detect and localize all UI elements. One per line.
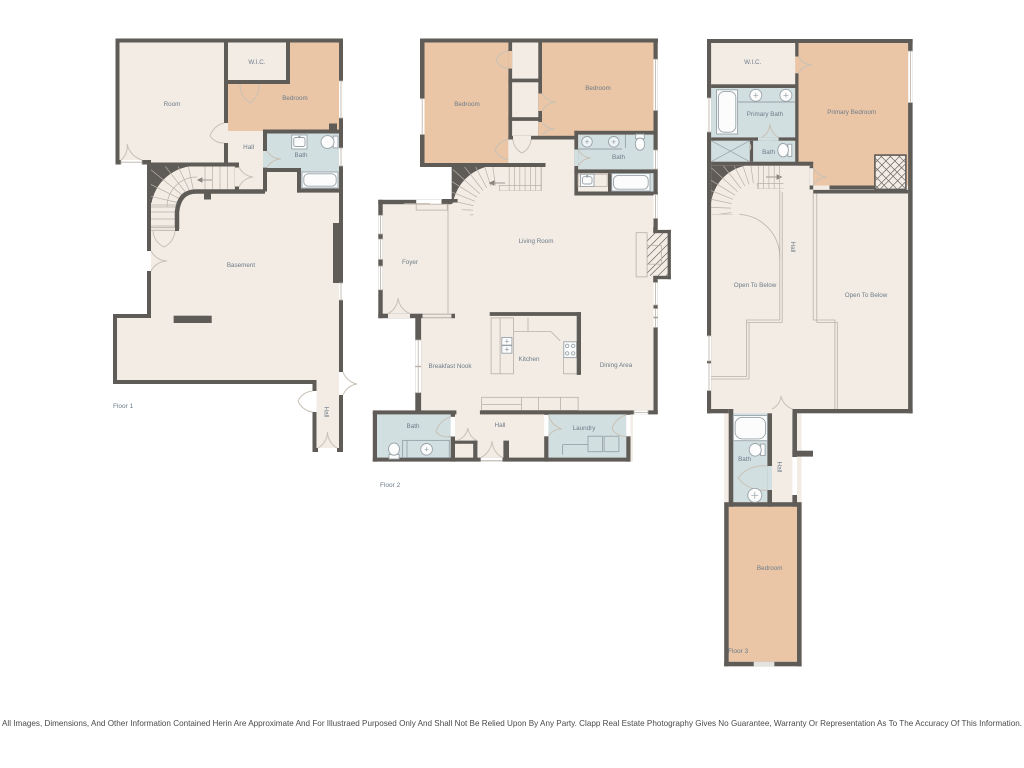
svg-text:Hall: Hall bbox=[243, 144, 254, 151]
svg-text:Laundry: Laundry bbox=[573, 425, 597, 432]
svg-text:Bedroom: Bedroom bbox=[757, 565, 783, 572]
svg-text:Hall: Hall bbox=[775, 462, 782, 473]
svg-text:Bedroom: Bedroom bbox=[454, 101, 480, 108]
svg-text:Living Room: Living Room bbox=[519, 238, 554, 245]
svg-text:Breakfast Nook: Breakfast Nook bbox=[428, 363, 472, 370]
svg-text:Open To Below: Open To Below bbox=[734, 282, 777, 289]
svg-text:Primary Bedroom: Primary Bedroom bbox=[827, 109, 876, 116]
svg-text:Hall: Hall bbox=[789, 242, 796, 253]
svg-text:Bath: Bath bbox=[612, 154, 625, 161]
svg-text:Bath: Bath bbox=[295, 152, 308, 159]
svg-text:Bath: Bath bbox=[762, 149, 775, 156]
svg-text:Basement: Basement bbox=[227, 262, 256, 269]
svg-text:All Images, Dimensions, And Ot: All Images, Dimensions, And Other Inform… bbox=[2, 719, 1022, 728]
svg-text:Dining Area: Dining Area bbox=[600, 362, 633, 369]
svg-text:Hall: Hall bbox=[495, 422, 506, 429]
svg-text:W.I.C.: W.I.C. bbox=[248, 59, 265, 66]
svg-text:Kitchen: Kitchen bbox=[518, 356, 540, 363]
svg-text:W.I.C.: W.I.C. bbox=[744, 59, 761, 66]
svg-text:Open To Below: Open To Below bbox=[845, 292, 888, 299]
svg-text:Bath: Bath bbox=[738, 456, 751, 463]
svg-text:Hall: Hall bbox=[323, 407, 330, 418]
svg-text:Floor 1: Floor 1 bbox=[113, 403, 134, 410]
svg-text:Primary Bath: Primary Bath bbox=[747, 111, 784, 118]
svg-text:Bedroom: Bedroom bbox=[282, 95, 308, 102]
svg-text:Floor 2: Floor 2 bbox=[380, 482, 401, 489]
svg-text:Floor 3: Floor 3 bbox=[728, 648, 749, 655]
svg-text:Bath: Bath bbox=[407, 423, 420, 430]
svg-text:Foyer: Foyer bbox=[402, 259, 418, 266]
svg-text:Room: Room bbox=[164, 101, 181, 108]
svg-text:Bedroom: Bedroom bbox=[585, 85, 611, 92]
